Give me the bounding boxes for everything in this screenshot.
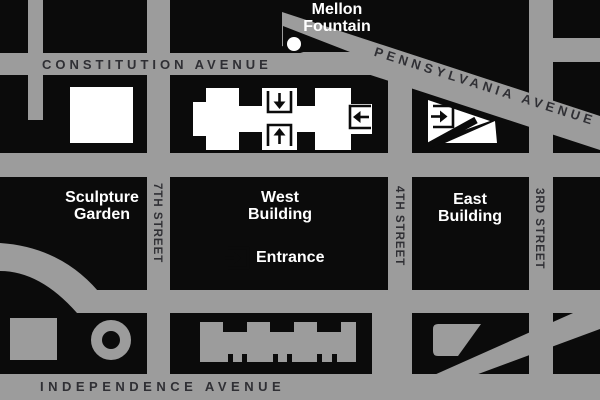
cross-street-upper	[0, 153, 600, 177]
third-street-label: 3RD STREET	[533, 188, 545, 270]
constitution-avenue-label: CONSTITUTION AVENUE	[42, 57, 272, 72]
fourth-street-label: 4TH STREET	[393, 186, 405, 266]
east-building-label: East Building	[420, 192, 520, 225]
sculpture-garden-pavilion-footprint	[70, 87, 133, 143]
west-building-label: West Building	[230, 190, 330, 223]
mellon-fountain-label: Mellon Fountain	[287, 2, 387, 35]
national-gallery-area-map: CONSTITUTION AVENUE PENNSYLVANIA AVENUE …	[0, 0, 600, 400]
independence-avenue-label: INDEPENDENCE AVENUE	[40, 379, 285, 394]
cross-street-lower	[95, 290, 600, 313]
notched-building-footprint	[200, 322, 356, 362]
cross-street-top-right	[553, 38, 600, 62]
west-building-footprint	[193, 88, 372, 150]
entrance-legend-label: Entrance	[256, 250, 324, 267]
mellon-fountain-dot-icon	[287, 37, 301, 51]
sculpture-garden-label: Sculpture Garden	[39, 190, 165, 223]
square-building-footprint	[10, 318, 57, 360]
